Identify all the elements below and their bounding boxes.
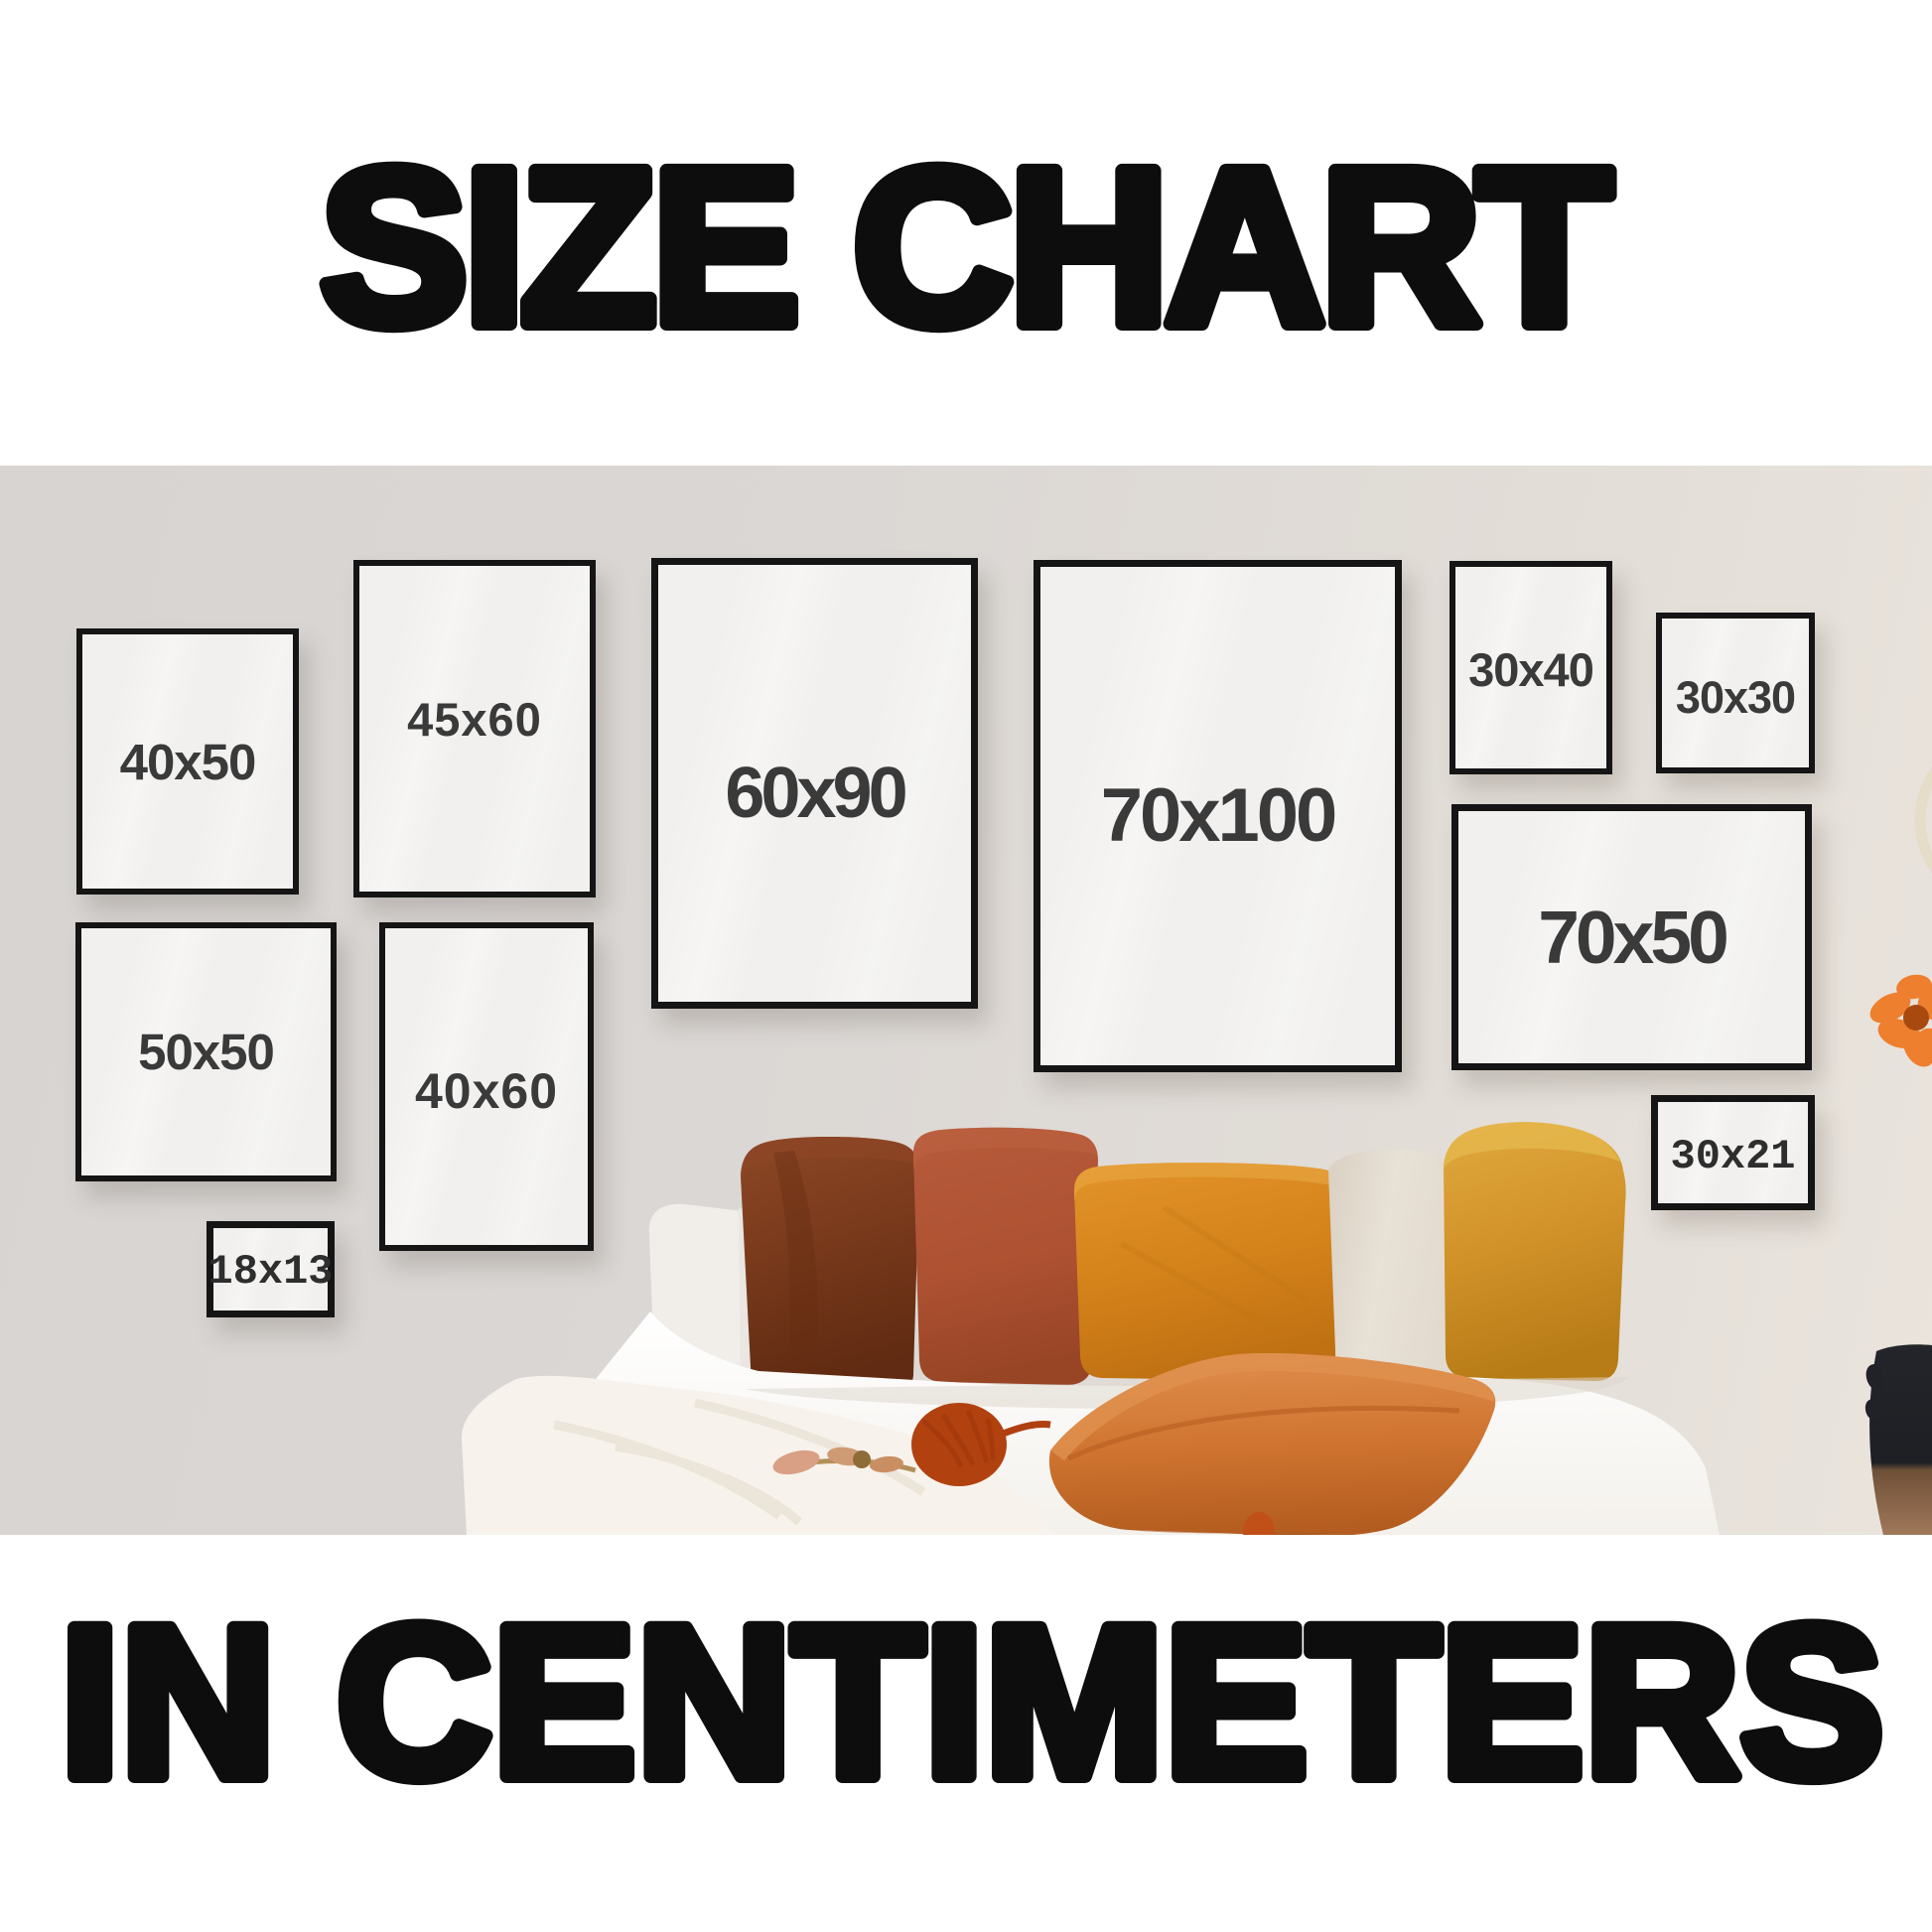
svg-text:IN CENTIMETERS: IN CENTIMETERS [61,1582,1884,1822]
svg-text:SIZE CHART: SIZE CHART [320,123,1612,371]
